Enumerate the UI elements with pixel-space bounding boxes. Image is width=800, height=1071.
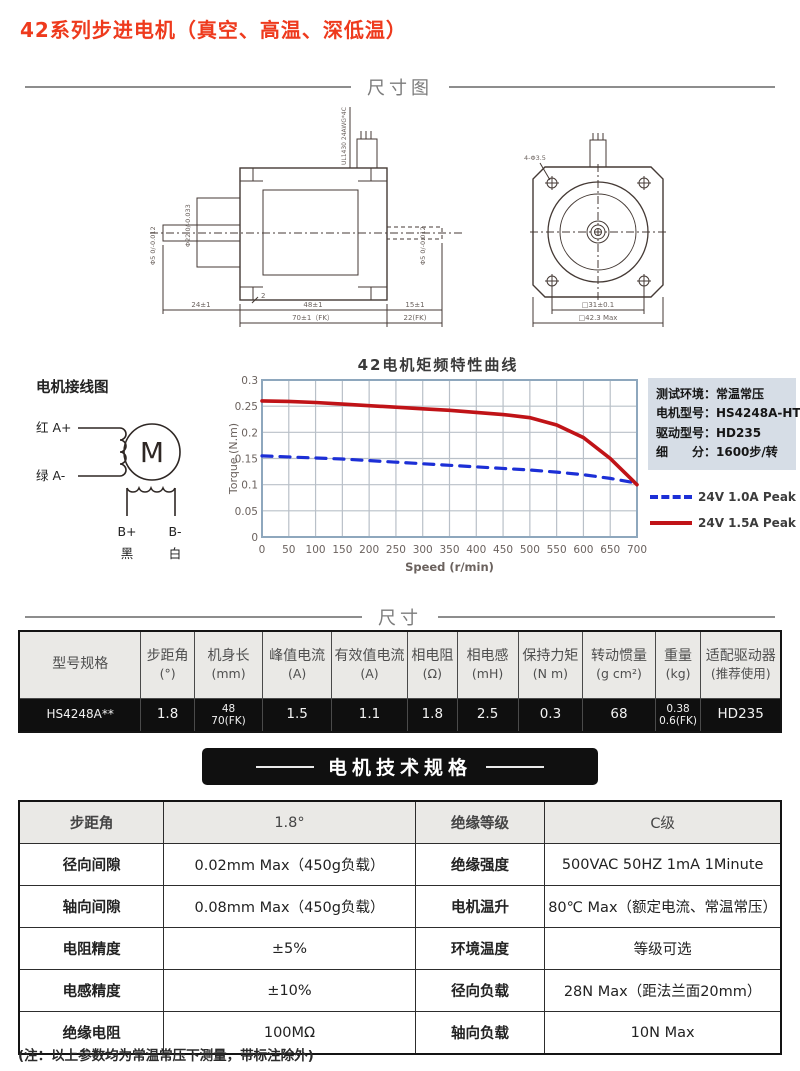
svg-text:0.25: 0.25: [235, 401, 258, 413]
divider-line: [25, 616, 362, 618]
cell-rms-current: 1.1: [331, 699, 407, 733]
size-table-header-row: 型号规格 步距角(°) 机身长(mm) 峰值电流(A) 有效值电流(A) 相电阻…: [19, 631, 781, 699]
motor-symbol: M: [140, 436, 164, 469]
wire-a-minus-label: 绿 A-: [36, 468, 65, 483]
spec-label: 电感精度: [19, 970, 164, 1012]
rear-shaft-len-label: 15±1: [405, 301, 424, 309]
motor-model: 电机型号：HS4248A-HT: [656, 404, 788, 423]
shaft-dia-label: Φ5 0/-0.012: [149, 226, 157, 265]
svg-text:700: 700: [627, 544, 647, 556]
svg-text:0.1: 0.1: [241, 480, 258, 492]
pilot-dia-label: Φ22 0/-0.033: [184, 204, 192, 247]
spec-value: 80℃ Max（额定电流、常温常压）: [545, 886, 781, 928]
spec-label: 绝缘等级: [415, 801, 545, 844]
chart-legend: 24V 1.0A Peak 24V 1.5A Peak: [650, 484, 798, 536]
col-phase-inductance: 相电感(mH): [457, 631, 518, 699]
wire-a-plus-label: 红 A+: [36, 420, 72, 435]
cell-model: HS4248A**: [19, 699, 141, 733]
cell-body-length: 48 70(FK): [194, 699, 263, 733]
spec-value: 0.02mm Max（450g负载）: [164, 844, 415, 886]
svg-text:300: 300: [413, 544, 433, 556]
spec-row: 轴向间隙 0.08mm Max（450g负载） 电机温升 80℃ Max（额定电…: [19, 886, 781, 928]
cell-peak-current: 1.5: [263, 699, 332, 733]
banner-title: 电机技术规格: [328, 753, 472, 780]
col-rms-current: 有效值电流(A): [331, 631, 407, 699]
front-shaft-len-label: 24±1: [191, 301, 210, 309]
spec-value: ±10%: [164, 970, 415, 1012]
spec-label: 电机温升: [415, 886, 545, 928]
svg-text:Torque (N.m): Torque (N.m): [228, 423, 240, 495]
svg-text:250: 250: [386, 544, 406, 556]
col-rotor-inertia: 转动惯量(g cm²): [583, 631, 655, 699]
svg-text:650: 650: [600, 544, 620, 556]
spec-row: 步距角 1.8° 绝缘等级 C级: [19, 801, 781, 844]
cell-rotor-inertia: 68: [583, 699, 655, 733]
size-table-data-row: HS4248A** 1.8 48 70(FK) 1.5 1.1 1.8 2.5 …: [19, 699, 781, 733]
rear-shaft-dia-label: Φ5 0/-0.012: [419, 226, 427, 265]
spec-value: 等级可选: [545, 928, 781, 970]
spec-value: 0.08mm Max（450g负载）: [164, 886, 415, 928]
col-model: 型号规格: [19, 631, 141, 699]
cell-weight: 0.38 0.6(FK): [655, 699, 701, 733]
spec-label: 环境温度: [415, 928, 545, 970]
wire-white-label: 白: [169, 546, 182, 561]
spec-value: 1.8°: [164, 801, 415, 844]
specs-banner: 电机技术规格: [202, 748, 598, 785]
microstep: 细 分：1600步/转: [656, 443, 788, 462]
svg-text:350: 350: [439, 544, 459, 556]
svg-text:100: 100: [306, 544, 326, 556]
spec-label: 径向负载: [415, 970, 545, 1012]
test-env: 测试环境：常温常压: [656, 385, 788, 404]
divider-line: [25, 86, 351, 88]
spec-value: 500VAC 50HZ 1mA 1Minute: [545, 844, 781, 886]
cell-driver: HD235: [701, 699, 781, 733]
rear-shaft-len-fk-label: 22(FK): [404, 314, 427, 322]
svg-text:0: 0: [259, 544, 266, 556]
cable-spec-label: UL1430 24AWG*4C: [341, 107, 348, 165]
cell-step-angle: 1.8: [141, 699, 194, 733]
divider-line: [449, 86, 775, 88]
svg-text:0.2: 0.2: [241, 427, 258, 439]
wiring-diagram: 电机接线图 红 A+ 绿 A- M B+ B- 黑 白: [30, 376, 230, 572]
driver-model: 驱动型号：HD235: [656, 424, 788, 443]
svg-text:200: 200: [359, 544, 379, 556]
spec-row: 电阻精度 ±5% 环境温度 等级可选: [19, 928, 781, 970]
footnote: (注：以上参数均为常温常压下测量，带标注除外): [18, 1044, 314, 1064]
cell-phase-inductance: 2.5: [457, 699, 518, 733]
svg-text:0: 0: [251, 532, 258, 544]
svg-text:0.3: 0.3: [241, 375, 258, 387]
wire-b-minus-label: B-: [168, 524, 181, 539]
torque-curve-chart: 0501001502002503003504004505005506006507…: [228, 372, 648, 580]
svg-text:0.05: 0.05: [235, 506, 258, 518]
col-peak-current: 峰值电流(A): [263, 631, 332, 699]
svg-text:450: 450: [493, 544, 513, 556]
spec-label: 径向间隙: [19, 844, 164, 886]
spec-label: 绝缘强度: [415, 844, 545, 886]
mounting-holes-label: 4-Φ3.5: [524, 154, 546, 162]
svg-text:150: 150: [332, 544, 352, 556]
body-len-fk-label: 70±1（FK）: [292, 314, 334, 322]
flange-size-label: □42.3 Max: [579, 314, 618, 322]
spec-value: 10N Max: [545, 1012, 781, 1055]
spec-row: 电感精度 ±10% 径向负载 28N Max（距法兰面20mm）: [19, 970, 781, 1012]
svg-text:400: 400: [466, 544, 486, 556]
wire-b-plus-label: B+: [117, 524, 136, 539]
spec-label: 步距角: [19, 801, 164, 844]
col-step-angle: 步距角(°): [141, 631, 194, 699]
col-holding-torque: 保持力矩(N m): [518, 631, 583, 699]
hole-pitch-label: □31±0.1: [582, 301, 615, 309]
svg-text:500: 500: [520, 544, 540, 556]
svg-text:50: 50: [282, 544, 295, 556]
spec-label: 电阻精度: [19, 928, 164, 970]
col-weight: 重量(kg): [655, 631, 701, 699]
banner-line: [256, 766, 314, 768]
spec-label: 轴向负载: [415, 1012, 545, 1055]
spec-value: ±5%: [164, 928, 415, 970]
section-title: 尺寸: [378, 604, 422, 630]
spec-row: 径向间隙 0.02mm Max（450g负载） 绝缘强度 500VAC 50HZ…: [19, 844, 781, 886]
body-len-label: 48±1: [303, 301, 322, 309]
legend-label: 24V 1.5A Peak: [698, 516, 796, 530]
col-driver: 适配驱动器(推荐使用): [701, 631, 781, 699]
wiring-title: 电机接线图: [36, 378, 109, 396]
legend-item-1p5A: 24V 1.5A Peak: [650, 510, 798, 536]
page-title: 42系列步进电机（真空、高温、深低温）: [20, 14, 407, 43]
cell-holding-torque: 0.3: [518, 699, 583, 733]
boss-len-label: 2: [261, 292, 265, 300]
spec-label: 轴向间隙: [19, 886, 164, 928]
banner-line: [486, 766, 544, 768]
dimension-drawing: UL1430 24AWG*4C Φ5 0/-0.012 Φ22 0/-0.033…: [0, 95, 800, 357]
cell-phase-resistance: 1.8: [408, 699, 458, 733]
divider-line: [438, 616, 775, 618]
legend-item-1A: 24V 1.0A Peak: [650, 484, 798, 510]
svg-text:Speed (r/min): Speed (r/min): [405, 560, 494, 574]
section-header-dimensions: 尺寸: [25, 604, 775, 630]
wire-black-label: 黑: [121, 546, 134, 561]
spec-table: 步距角 1.8° 绝缘等级 C级 径向间隙 0.02mm Max（450g负载）…: [18, 800, 782, 1055]
col-body-length: 机身长(mm): [194, 631, 263, 699]
col-phase-resistance: 相电阻(Ω): [408, 631, 458, 699]
svg-text:600: 600: [573, 544, 593, 556]
spec-value: C级: [545, 801, 781, 844]
legend-line-red-solid: [650, 521, 692, 525]
size-table: 型号规格 步距角(°) 机身长(mm) 峰值电流(A) 有效值电流(A) 相电阻…: [18, 630, 782, 733]
spec-value: 28N Max（距法兰面20mm）: [545, 970, 781, 1012]
legend-label: 24V 1.0A Peak: [698, 490, 796, 504]
test-conditions-panel: 测试环境：常温常压 电机型号：HS4248A-HT 驱动型号：HD235 细 分…: [648, 378, 796, 470]
svg-text:550: 550: [547, 544, 567, 556]
legend-line-blue-dashed: [650, 495, 692, 499]
